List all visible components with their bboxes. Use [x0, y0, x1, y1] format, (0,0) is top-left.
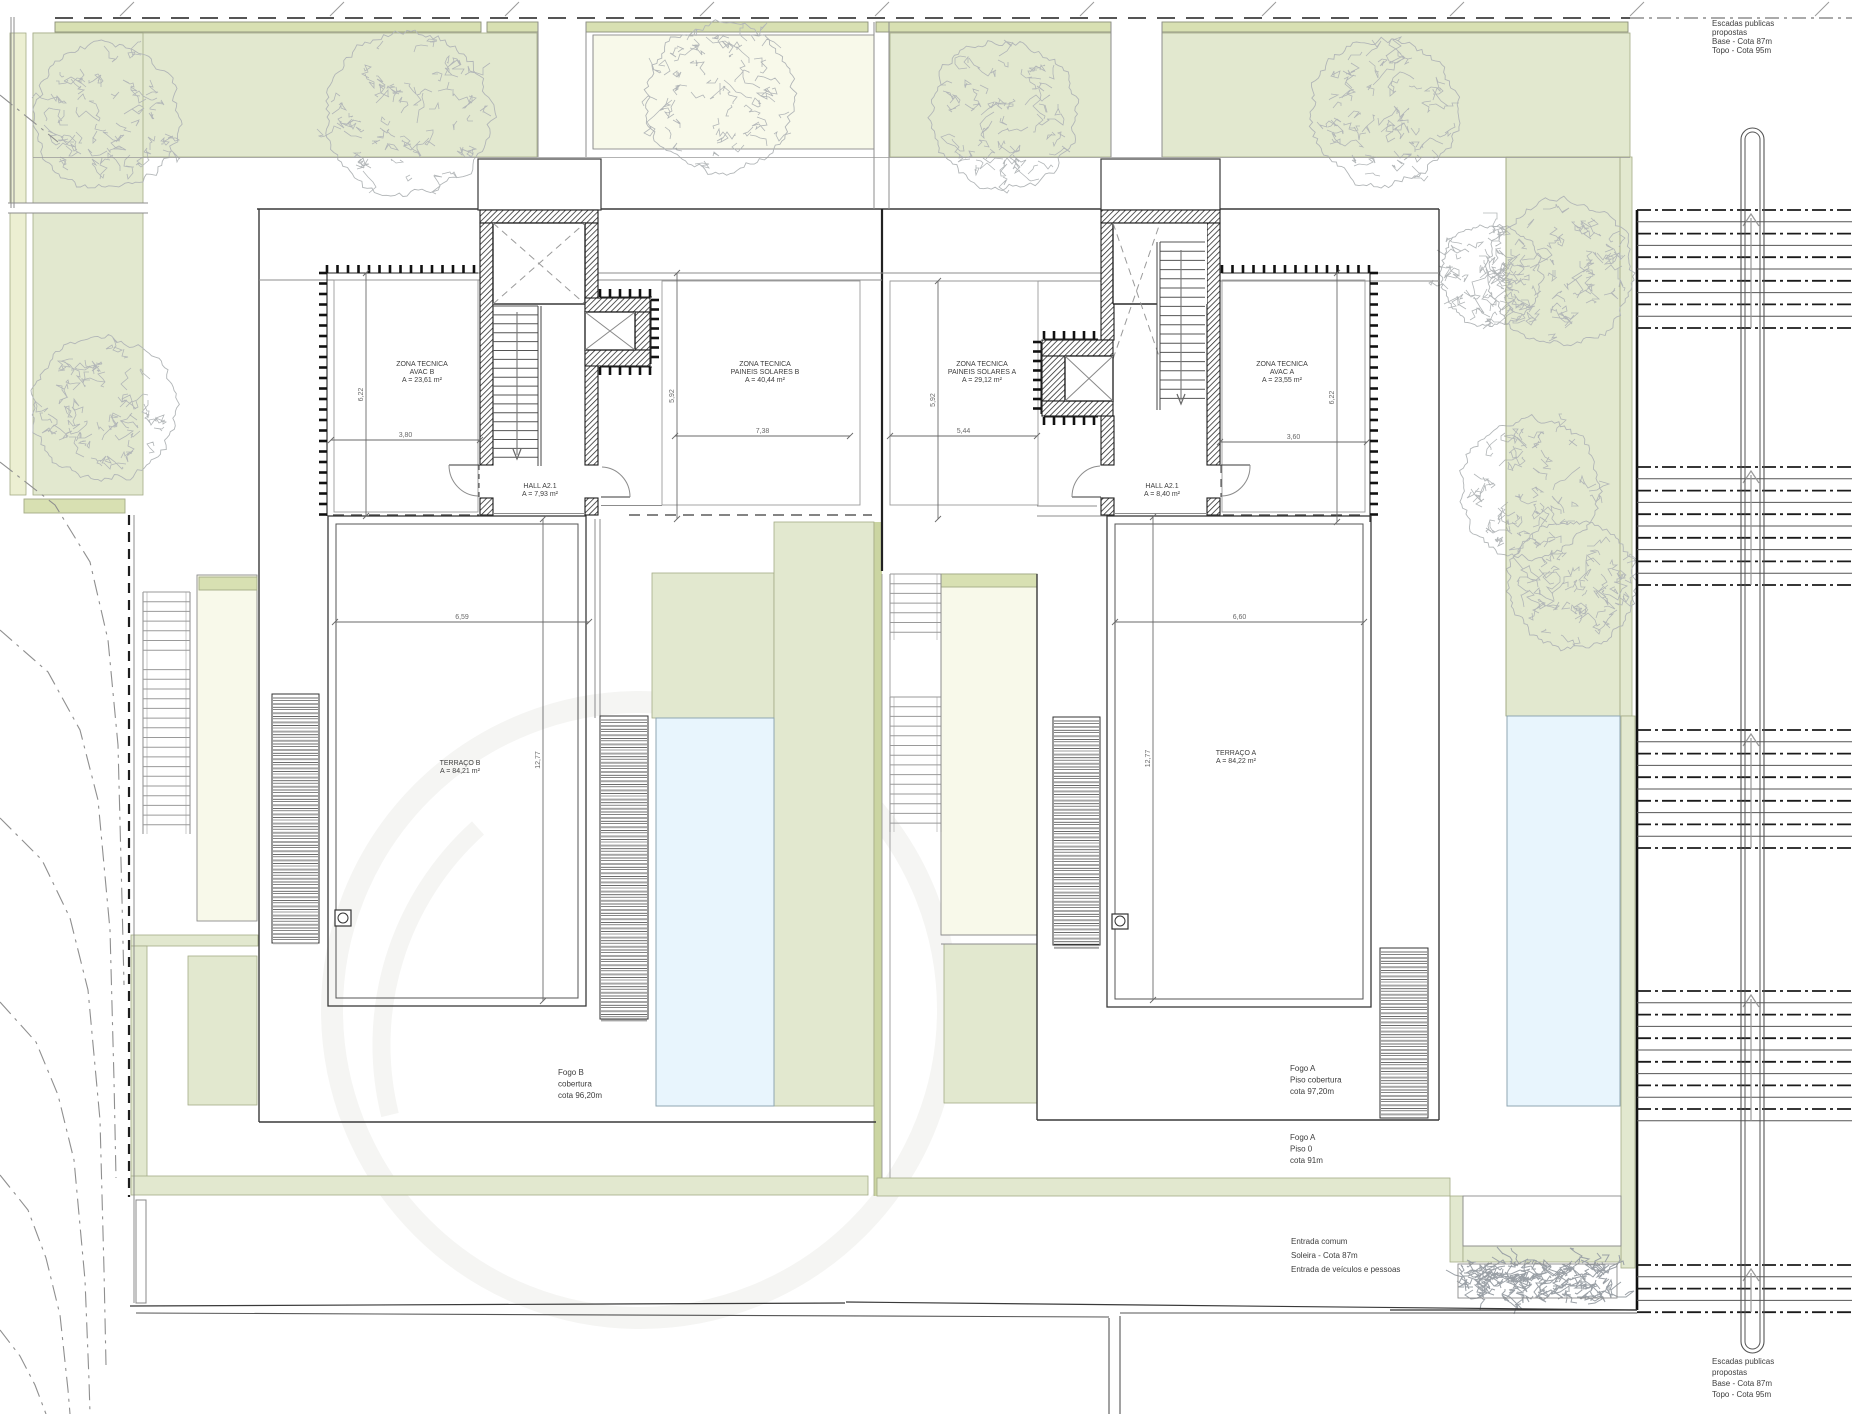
svg-text:Entrada de veículos e pessoas: Entrada de veículos e pessoas — [1291, 1265, 1400, 1274]
svg-text:A = 40,44 m²: A = 40,44 m² — [745, 377, 786, 384]
svg-text:6,22: 6,22 — [1329, 391, 1336, 405]
svg-text:cobertura: cobertura — [558, 1080, 592, 1089]
svg-text:PAINEIS SOLARES A: PAINEIS SOLARES A — [948, 369, 1017, 376]
svg-text:A = 7,93 m²: A = 7,93 m² — [522, 491, 559, 498]
svg-text:propostas: propostas — [1712, 28, 1747, 37]
svg-text:Base - Cota 87m: Base - Cota 87m — [1712, 1379, 1772, 1388]
svg-text:5,92: 5,92 — [669, 389, 676, 403]
svg-text:HALL A2.1: HALL A2.1 — [523, 483, 556, 490]
svg-text:7,38: 7,38 — [756, 428, 770, 435]
svg-text:A = 23,55 m²: A = 23,55 m² — [1262, 377, 1303, 384]
svg-text:ZONA TECNICA: ZONA TECNICA — [1256, 361, 1308, 368]
svg-text:Piso 0: Piso 0 — [1290, 1145, 1313, 1154]
svg-text:AVAC A: AVAC A — [1270, 369, 1295, 376]
svg-text:A = 8,40 m²: A = 8,40 m² — [1144, 491, 1181, 498]
svg-text:A = 23,61 m²: A = 23,61 m² — [402, 377, 443, 384]
svg-text:PAINEIS SOLARES B: PAINEIS SOLARES B — [731, 369, 800, 376]
svg-text:AVAC B: AVAC B — [410, 369, 435, 376]
svg-text:cota 91m: cota 91m — [1290, 1156, 1323, 1165]
svg-text:A = 84,22 m²: A = 84,22 m² — [1216, 758, 1257, 765]
svg-text:TERRAÇO B: TERRAÇO B — [440, 760, 481, 767]
svg-text:Topo - Cota 95m: Topo - Cota 95m — [1712, 46, 1771, 55]
svg-text:ZONA TECNICA: ZONA TECNICA — [956, 361, 1008, 368]
svg-text:3,80: 3,80 — [399, 432, 413, 439]
svg-text:3,60: 3,60 — [1287, 434, 1301, 441]
svg-text:5,92: 5,92 — [930, 393, 937, 407]
svg-text:A = 84,21 m²: A = 84,21 m² — [440, 768, 481, 775]
svg-text:12,77: 12,77 — [535, 751, 542, 769]
svg-text:Fogo A: Fogo A — [1290, 1064, 1316, 1073]
svg-text:Base - Cota 87m: Base - Cota 87m — [1712, 37, 1772, 46]
svg-text:ZONA TECNICA: ZONA TECNICA — [739, 361, 791, 368]
svg-text:propostas: propostas — [1712, 1368, 1747, 1377]
svg-text:6,59: 6,59 — [455, 614, 469, 621]
svg-text:Fogo A: Fogo A — [1290, 1133, 1316, 1142]
svg-text:TERRAÇO A: TERRAÇO A — [1216, 750, 1257, 757]
svg-text:Topo - Cota 95m: Topo - Cota 95m — [1712, 1390, 1771, 1399]
svg-text:Piso cobertura: Piso cobertura — [1290, 1076, 1342, 1085]
svg-text:Soleira - Cota 87m: Soleira - Cota 87m — [1291, 1251, 1358, 1260]
svg-text:6,60: 6,60 — [1233, 614, 1247, 621]
svg-text:cota 97,20m: cota 97,20m — [1290, 1087, 1334, 1096]
svg-text:Entrada comum: Entrada comum — [1291, 1237, 1348, 1246]
svg-text:cota 96,20m: cota 96,20m — [558, 1091, 602, 1100]
svg-text:A = 29,12 m²: A = 29,12 m² — [962, 377, 1003, 384]
svg-text:12,77: 12,77 — [1145, 750, 1152, 768]
svg-text:Escadas publicas: Escadas publicas — [1712, 1357, 1774, 1366]
svg-text:6,22: 6,22 — [358, 388, 365, 402]
svg-text:Escadas publicas: Escadas publicas — [1712, 19, 1774, 28]
svg-text:HALL A2.1: HALL A2.1 — [1145, 483, 1178, 490]
svg-text:ZONA TECNICA: ZONA TECNICA — [396, 361, 448, 368]
svg-text:5,44: 5,44 — [957, 428, 971, 435]
svg-text:Fogo B: Fogo B — [558, 1068, 584, 1077]
